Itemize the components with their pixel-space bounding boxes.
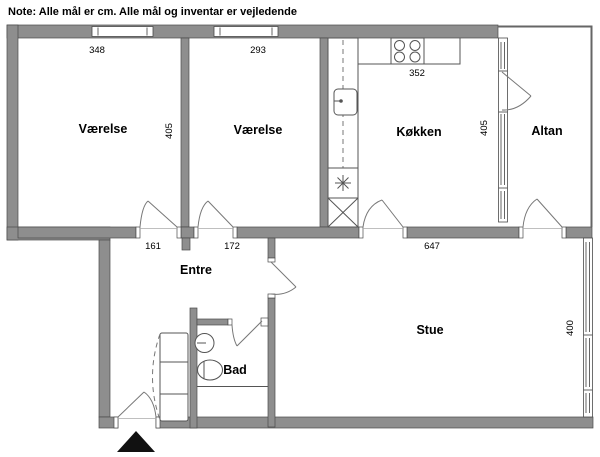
floor-plan: Note: Alle mål er cm. Alle mål og invent…: [0, 0, 600, 457]
note-text: Note: Alle mål er cm. Alle mål og invent…: [8, 6, 297, 18]
room-label-vaerelse2: Værelse: [234, 123, 283, 137]
dim-koekken-width: 352: [409, 68, 425, 79]
room-label-altan: Altan: [531, 124, 562, 138]
door-vaerelse2: [198, 201, 233, 227]
room-label-koekken: Køkken: [396, 125, 441, 139]
dim-stue-depth: 400: [565, 320, 576, 336]
dim-entre-opening2: 172: [224, 241, 240, 252]
room-label-bad: Bad: [223, 363, 247, 377]
room-label-vaerelse1: Værelse: [79, 122, 128, 136]
door-koekken: [363, 200, 403, 227]
door-stue-altan: [523, 199, 562, 227]
entrance-arrow-icon: [117, 431, 155, 452]
room-label-stue: Stue: [416, 323, 443, 337]
stove-icon: [391, 38, 424, 64]
floor-plan-canvas: Note: Alle mål er cm. Alle mål og invent…: [0, 0, 600, 457]
toilet-icon: [198, 360, 223, 380]
dim-koekken-depth: 405: [479, 120, 490, 136]
room-label-entre: Entre: [180, 263, 212, 277]
kitchen-sink-icon: [334, 89, 357, 115]
dim-vaerelse-depth: 405: [164, 123, 175, 139]
dim-vaerelse1-width: 348: [89, 45, 105, 56]
window-wall-stue: [584, 238, 593, 417]
dim-entre-opening1: 161: [145, 241, 161, 252]
window-vaerelse2: [214, 27, 278, 37]
window-vaerelse1: [92, 27, 153, 37]
door-entrance: [118, 392, 156, 417]
dim-stue-width: 647: [424, 241, 440, 252]
dim-vaerelse2-width: 293: [250, 45, 266, 56]
window-wall-koekken-altan: [499, 38, 508, 222]
wardrobe-icon: [153, 333, 189, 421]
door-vaerelse1: [140, 201, 177, 227]
bath-sink-icon: [195, 334, 214, 353]
kitchen-cabinet-run: [328, 38, 358, 227]
door-entre-stue: [271, 262, 296, 294]
door-bad: [232, 321, 262, 346]
